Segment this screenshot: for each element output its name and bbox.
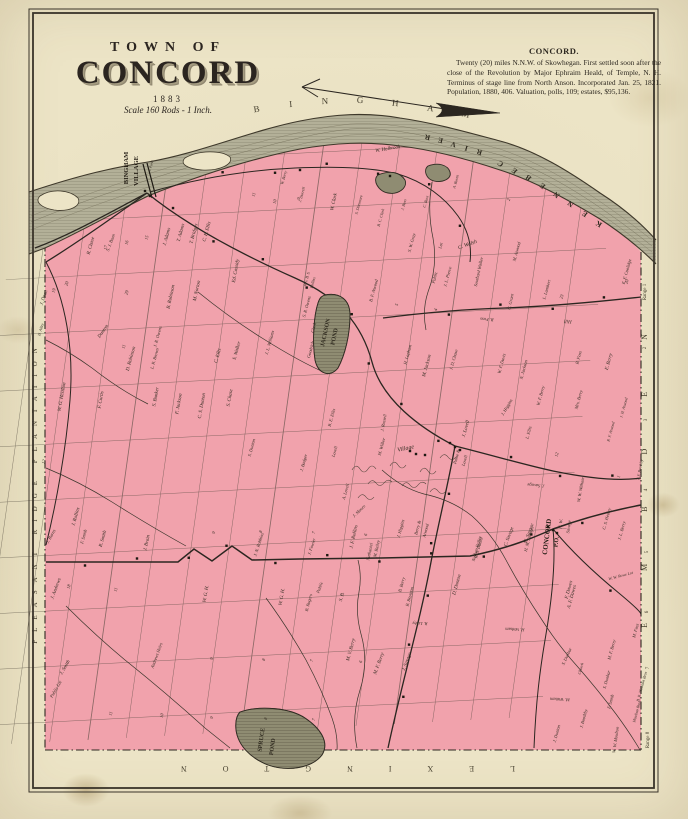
building (225, 545, 227, 547)
building (136, 557, 138, 559)
map-label: 7 (646, 666, 651, 669)
building (84, 564, 86, 566)
building (299, 169, 301, 171)
map-label: H (392, 98, 400, 109)
map-label: Range 8 (646, 731, 651, 748)
building (144, 190, 146, 192)
building (552, 308, 554, 310)
map-sheet: PLEASANT RIDGE PLANTATIONLEXINGTONEMBDEN… (0, 0, 688, 819)
building (552, 529, 554, 531)
note-body: Twenty (20) miles N.N.W. of Skowhegan. F… (447, 58, 661, 97)
title-block: TOWN OF CONCORD 1883 Scale 160 Rods - 1 … (70, 40, 266, 115)
concord-map-svg: PLEASANT RIDGE PLANTATIONLEXINGTONEMBDEN… (0, 0, 688, 819)
building (448, 313, 450, 315)
building (368, 362, 370, 364)
building (430, 552, 432, 554)
river-island (38, 191, 79, 210)
map-label: R. Libby (412, 621, 428, 627)
building (212, 240, 214, 242)
map-label: M. Witham (549, 697, 571, 703)
building (377, 173, 379, 175)
building (424, 454, 426, 456)
building (389, 175, 391, 177)
building (483, 555, 485, 557)
map-title: CONCORD (70, 56, 266, 91)
building (459, 225, 461, 227)
building (603, 296, 605, 298)
map-title-kicker: TOWN OF (70, 40, 266, 56)
map-label: B. Foss (480, 317, 494, 323)
map-year: 1883 (70, 94, 266, 104)
map-label: LEXINGTON (145, 764, 515, 773)
building (188, 557, 190, 559)
building (611, 474, 613, 476)
map-label: H. Alley (36, 322, 45, 337)
map-label: BINGHAM (123, 152, 130, 185)
note-heading: CONCORD. (447, 46, 661, 56)
building (149, 195, 151, 197)
building (556, 532, 558, 534)
building (499, 303, 501, 305)
map-label: Range 1 (643, 283, 648, 300)
building (454, 446, 456, 448)
building (326, 163, 328, 165)
building (172, 207, 174, 209)
map-label: H. Witham (504, 627, 525, 633)
building (378, 560, 380, 562)
town-area (45, 143, 641, 750)
building (437, 440, 439, 442)
map-scale: Scale 160 Rods - 1 Inch. (70, 105, 266, 115)
building (449, 442, 451, 444)
building (402, 696, 404, 698)
building (262, 258, 264, 260)
building (427, 594, 429, 596)
map-label: EMBDEN (640, 282, 649, 628)
building (351, 313, 353, 315)
building (510, 456, 512, 458)
building (559, 475, 561, 477)
map-label: I (289, 99, 293, 109)
building (400, 403, 402, 405)
building (326, 554, 328, 556)
building (430, 542, 432, 544)
building (428, 183, 430, 185)
building (581, 522, 583, 524)
building (221, 171, 223, 173)
map-label: Hill (563, 318, 573, 324)
building (415, 453, 417, 455)
gazetteer-note: CONCORD. Twenty (20) miles N.N.W. of Sko… (447, 46, 661, 97)
building (448, 493, 450, 495)
map-label: VILLAGE (133, 156, 140, 186)
building (274, 562, 276, 564)
map-label: A (426, 103, 435, 114)
building (274, 172, 276, 174)
small-pond (426, 164, 451, 181)
building (609, 589, 611, 591)
building (408, 643, 410, 645)
map-label: N (321, 96, 328, 106)
